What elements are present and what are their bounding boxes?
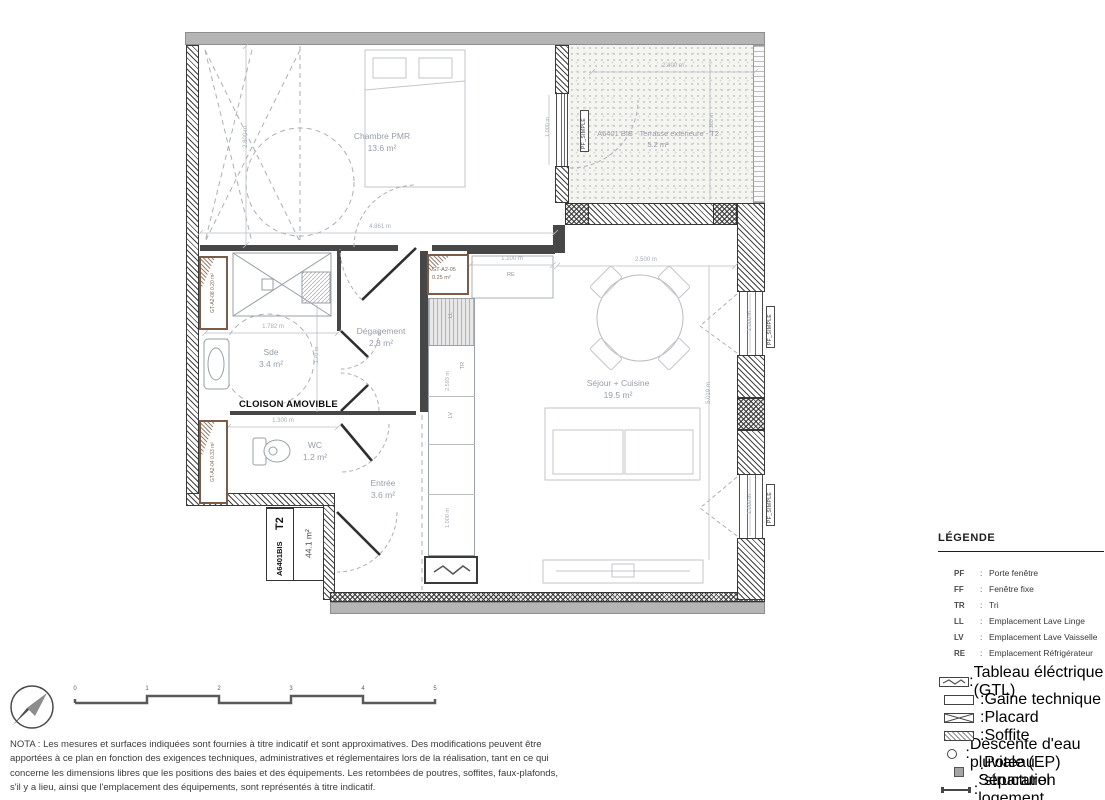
dim-terrasse-height: 2.180 m (709, 98, 715, 148)
legend-desc: Emplacement Lave Linge (989, 616, 1085, 626)
legend-row-separation: : Séparation logement (938, 781, 1104, 799)
counter-divider (428, 494, 475, 495)
legend-row-ll: LL:Emplacement Lave Linge (938, 613, 1104, 629)
legend-sep: : (980, 600, 989, 610)
dim-sde-height: 1.70 m (314, 330, 320, 380)
cloison-amovible-label: CLOISON AMOVIBLE (239, 399, 338, 410)
room-name: Séjour + Cuisine (587, 378, 650, 388)
appliance-ll: LL (449, 312, 455, 318)
scale-tick: 1 (142, 686, 152, 692)
dim-terrasse-width: 2.400 m (638, 63, 708, 69)
counter-divider (428, 396, 475, 397)
room-area: 1.2 m² (303, 452, 327, 462)
appliance-lv: LV (449, 412, 455, 418)
appliance-tr: TR (461, 362, 467, 369)
legend-code: PF (954, 569, 980, 578)
dim-window-chambre: 1.000 m (545, 102, 551, 152)
scale-tick: 4 (358, 686, 368, 692)
room-name: Sde (263, 347, 278, 357)
door-leaves (337, 248, 416, 555)
legend-desc: Emplacement Lave Vaisselle (989, 632, 1098, 642)
gaine-gt-a2-04: GT-A2-040.33 m² (199, 420, 228, 504)
legend-row-gtl: : Tableau éléctrique (GTL) (938, 673, 1104, 691)
legend-code: FF (954, 585, 980, 594)
gaine-gt-a2-08: GT-A2-080.20 m² (199, 256, 228, 330)
window-tag: PF_SIMPLE (766, 306, 775, 348)
gaine-area: 0.25 m² (432, 275, 451, 282)
gtl-electrical-box (424, 556, 478, 584)
dim-window-sejour-2: 1.000 m (747, 479, 753, 529)
legend-code: LL (954, 617, 980, 626)
legend-desc: Porte fenêtre (989, 568, 1038, 578)
gaine-code: GT-A2-04 (210, 460, 217, 482)
room-area: 19.5 m² (604, 390, 633, 400)
legend-sep: : (980, 568, 989, 578)
dim-sde-width: 1.782 m (238, 324, 308, 330)
soffite-icon (944, 731, 974, 741)
poteau-structurel-icon (954, 767, 964, 777)
lot-code: A6401 (275, 554, 285, 576)
room-area: 3.4 m² (259, 359, 283, 369)
legend-row-tr: TR:Tri (938, 597, 1104, 613)
lot-number: A6401 BIS (267, 538, 293, 580)
room-label-wc: WC 1.2 m² (290, 440, 340, 464)
dim-wc-width: 1.300 m (248, 418, 318, 424)
legend-desc: Fenêtre fixe (989, 584, 1034, 594)
separation-logement-icon (941, 787, 971, 793)
floor-plan-sheet: GT-A2-080.20 m² GT-A2-040.33 m² GT-A2-05… (0, 0, 1105, 800)
legend-sep: : (980, 584, 989, 594)
legend-row-placard: : Placard (938, 709, 1104, 727)
legend-code: RE (954, 649, 980, 658)
gaine-technique-icon (944, 695, 974, 705)
dim-gtl: 1.000 m (445, 493, 451, 543)
legend-row-gaine: : Gaine technique (938, 691, 1104, 709)
legend-desc: Tri (989, 600, 999, 610)
lot-type: T2 (267, 508, 293, 538)
scale-tick: 0 (70, 686, 80, 692)
gaine-area: 0.33 m² (210, 442, 217, 459)
appliance-re: RE (507, 272, 515, 278)
gaine-area: 0.20 m² (210, 273, 217, 290)
dim-sejour-height: 5.019 m (706, 368, 712, 418)
legend-desc: Emplacement Réfrigérateur (989, 648, 1093, 658)
room-name: Dégagement (357, 326, 406, 336)
dim-re-width: 1.100 m (477, 256, 547, 262)
room-name: Chambre PMR (354, 131, 410, 141)
gaine-gt-a2-05: GT-A2-050.25 m² (427, 254, 469, 295)
placard-icon (944, 713, 974, 723)
scale-bar (75, 696, 435, 703)
dim-sejour-width: 2.500 m (611, 257, 681, 263)
scale-tick: 3 (286, 686, 296, 692)
legend-sep: : (980, 632, 989, 642)
lot-area: 44.1 m² (294, 508, 323, 580)
north-arrow-icon (11, 686, 53, 728)
legend-desc: Gaine technique (984, 691, 1101, 709)
legend-code: LV (954, 633, 980, 642)
legend-title: LÉGENDE (938, 532, 1104, 552)
lot-bis: BIS (275, 542, 285, 555)
nota-text: NOTA : Les mesures et surfaces indiquées… (10, 738, 632, 795)
dim-window-sejour-1: 1.000 m (747, 296, 753, 346)
room-area: 13.6 m² (368, 143, 397, 153)
counter-divider (428, 444, 475, 445)
legend-row-re: RE:Emplacement Réfrigérateur (938, 645, 1104, 661)
room-label-sejour: Séjour + Cuisine 19.5 m² (558, 378, 678, 402)
dim-chambre-width: 4.861 m (345, 224, 415, 230)
title-block-left: T2 A6401 BIS (267, 508, 294, 580)
legend-row-lv: LV:Emplacement Lave Vaisselle (938, 629, 1104, 645)
title-block: T2 A6401 BIS 44.1 m² (266, 507, 324, 581)
gtl-zigzag (426, 558, 476, 582)
room-area: 3.6 m² (371, 490, 395, 500)
room-label-entree: Entrée 3.6 m² (343, 478, 423, 502)
legend-panel: LÉGENDE PF:Porte fenêtre FF:Fenêtre fixe… (938, 532, 1104, 799)
legend-row-ff: FF:Fenêtre fixe (938, 581, 1104, 597)
room-label-sde: Sde 3.4 m² (231, 347, 311, 371)
room-name: Entrée (370, 478, 395, 488)
gtl-panel-icon (939, 677, 969, 687)
legend-code: TR (954, 601, 980, 610)
legend-sep: : (980, 648, 989, 658)
gaine-code: GT-A2-05 (432, 267, 456, 274)
window-tag: PF_SIMPLE (766, 484, 775, 526)
room-name: WC (308, 440, 322, 450)
room-label-chambre: Chambre PMR 13.6 m² (322, 131, 442, 155)
scale-tick: 5 (430, 686, 440, 692)
descente-eau-icon (947, 749, 957, 759)
dim-kitchen-height: 2.593 m (445, 356, 451, 406)
legend-sep: : (980, 616, 989, 626)
legend-desc: Séparation logement (978, 772, 1104, 800)
room-area: 2.8 m² (369, 338, 393, 348)
room-name: A6401 BIS - Terrasse extérieure - T2 (597, 129, 719, 138)
gaine-code: GT-A2-08 (210, 291, 217, 313)
washing-machine-slot (428, 298, 475, 346)
dim-chambre-height: 2.800 m (243, 112, 249, 162)
scale-tick: 2 (214, 686, 224, 692)
dimension-lines (197, 43, 758, 560)
room-area: 5.2 m² (647, 140, 668, 149)
legend-row-pf: PF:Porte fenêtre (938, 565, 1104, 581)
legend-desc: Placard (984, 709, 1038, 727)
room-label-degagement: Dégagement 2.8 m² (341, 326, 421, 350)
